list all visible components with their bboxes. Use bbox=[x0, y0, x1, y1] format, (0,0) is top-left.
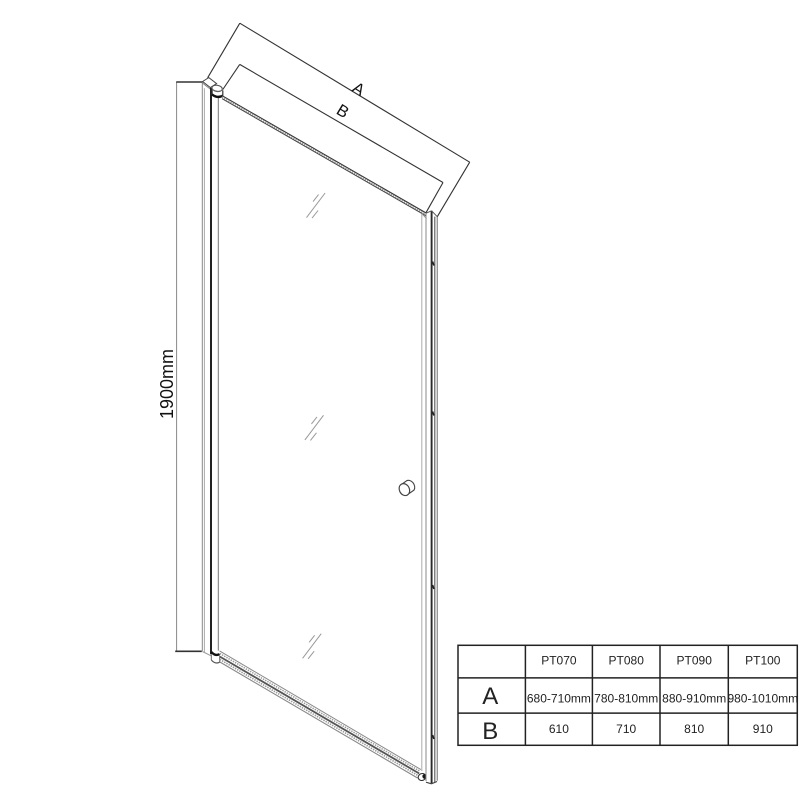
svg-text:810: 810 bbox=[684, 722, 704, 736]
svg-text:PT090: PT090 bbox=[677, 654, 713, 668]
svg-text:710: 710 bbox=[616, 722, 636, 736]
svg-text:PT100: PT100 bbox=[745, 654, 781, 668]
svg-text:B: B bbox=[482, 718, 498, 745]
svg-text:910: 910 bbox=[753, 722, 773, 736]
svg-text:780-810mm: 780-810mm bbox=[594, 692, 658, 706]
svg-text:680-710mm: 680-710mm bbox=[527, 692, 591, 706]
svg-text:PT080: PT080 bbox=[609, 654, 645, 668]
svg-text:A: A bbox=[482, 683, 498, 710]
svg-text:980-1010mm: 980-1010mm bbox=[727, 692, 798, 706]
svg-text:610: 610 bbox=[549, 722, 569, 736]
svg-text:1900mm: 1900mm bbox=[157, 349, 177, 419]
svg-text:PT070: PT070 bbox=[541, 654, 577, 668]
svg-text:880-910mm: 880-910mm bbox=[662, 692, 726, 706]
